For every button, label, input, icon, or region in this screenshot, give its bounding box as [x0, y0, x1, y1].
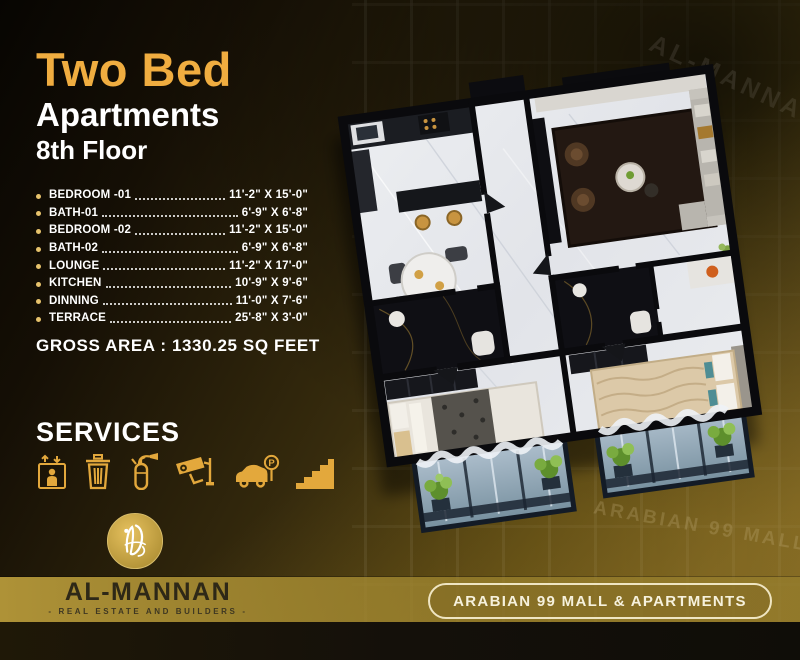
room-label: TERRACE: [49, 312, 106, 325]
cctv-camera-icon: [175, 454, 219, 490]
room-size: 6'-9" X 6'-8": [242, 242, 308, 255]
footer-dark-strip: [0, 622, 800, 660]
brand-logo-emblem: [106, 512, 164, 570]
room-size: 10'-9" X 9'-6": [235, 277, 308, 290]
bullet-dot: [36, 211, 41, 216]
bar-stool: [446, 210, 462, 226]
bullet-dot: [36, 317, 41, 322]
bullet-dot: [36, 299, 41, 304]
room-size: 11'-2" X 15'-0": [229, 189, 308, 202]
title-floor: 8th Floor: [36, 137, 232, 164]
room-dimension-row: BEDROOM -0211'-2" X 15'-0": [36, 224, 308, 237]
room-label: BEDROOM -02: [49, 224, 131, 237]
throw-blanket: [431, 389, 496, 453]
fire-extinguisher-icon: [128, 452, 160, 490]
dotted-leader: [110, 321, 231, 323]
bar-stool: [415, 215, 431, 231]
room-label: DINNING: [49, 295, 99, 308]
bullet-dot: [36, 247, 41, 252]
room-label: BATH-01: [49, 207, 98, 220]
title-line-white: Apartments: [36, 98, 232, 132]
room-label: BATH-02: [49, 242, 98, 255]
room-dimension-row: KITCHEN10'-9" X 9'-6": [36, 277, 308, 290]
floor-plan-render: [298, 24, 798, 624]
room-dimension-row: BATH-026'-9" X 6'-8": [36, 242, 308, 255]
brand-tagline: - REAL ESTATE AND BUILDERS -: [14, 607, 282, 616]
project-name-badge: ARABIAN 99 MALL & APARTMENTS: [428, 583, 772, 619]
room-size: 25'-8" X 3'-0": [235, 312, 308, 325]
dotted-leader: [102, 251, 238, 253]
dotted-leader: [135, 198, 225, 200]
gross-area-text: GROSS AREA : 1330.25 SQ FEET: [36, 336, 320, 356]
parking-glyph: P: [268, 458, 275, 469]
room-size: 11'-2" X 15'-0": [229, 224, 308, 237]
room-dimension-row: TERRACE25'-8" X 3'-0": [36, 312, 308, 325]
room-dimension-row: LOUNGE11'-2" X 17'-0": [36, 260, 308, 273]
room-size: 11'-2" X 17'-0": [229, 260, 308, 273]
dotted-leader: [103, 303, 232, 305]
dotted-leader: [135, 233, 225, 235]
bullet-dot: [36, 282, 41, 287]
brand-block: AL-MANNAN - REAL ESTATE AND BUILDERS -: [14, 579, 282, 616]
trash-bin-icon: [83, 453, 113, 490]
ottoman: [679, 201, 708, 230]
elevator-icon: [36, 453, 68, 490]
room-size: 11'-0" X 7'-6": [236, 295, 308, 308]
poster: AL-MANNAN ARABIAN 99 MALL: [0, 0, 800, 660]
stairs-icon: [295, 454, 335, 490]
brand-name: AL-MANNAN: [14, 579, 282, 605]
bullet-dot: [36, 229, 41, 234]
title-line-gold: Two Bed: [36, 46, 232, 95]
room-dimension-row: BATH-016'-9" X 6'-8": [36, 207, 308, 220]
room-dimension-row: BEDROOM -0111'-2" X 15'-0": [36, 189, 308, 202]
room-label: KITCHEN: [49, 277, 102, 290]
room-dimension-row: DINNING11'-0" X 7'-6": [36, 295, 308, 308]
services-heading: SERVICES: [36, 417, 180, 448]
dotted-leader: [102, 215, 238, 217]
page-title: Two Bed Apartments 8th Floor: [36, 46, 232, 164]
bullet-dot: [36, 194, 41, 199]
room-label: LOUNGE: [49, 260, 99, 273]
dotted-leader: [106, 286, 232, 288]
services-icons: P: [36, 452, 335, 490]
car-parking-icon: P: [234, 454, 280, 490]
room-dimensions-list: BEDROOM -0111'-2" X 15'-0" BATH-016'-9" …: [36, 189, 308, 330]
room-size: 6'-9" X 6'-8": [242, 207, 308, 220]
dotted-leader: [103, 268, 225, 270]
room-label: BEDROOM -01: [49, 189, 131, 202]
bullet-dot: [36, 264, 41, 269]
